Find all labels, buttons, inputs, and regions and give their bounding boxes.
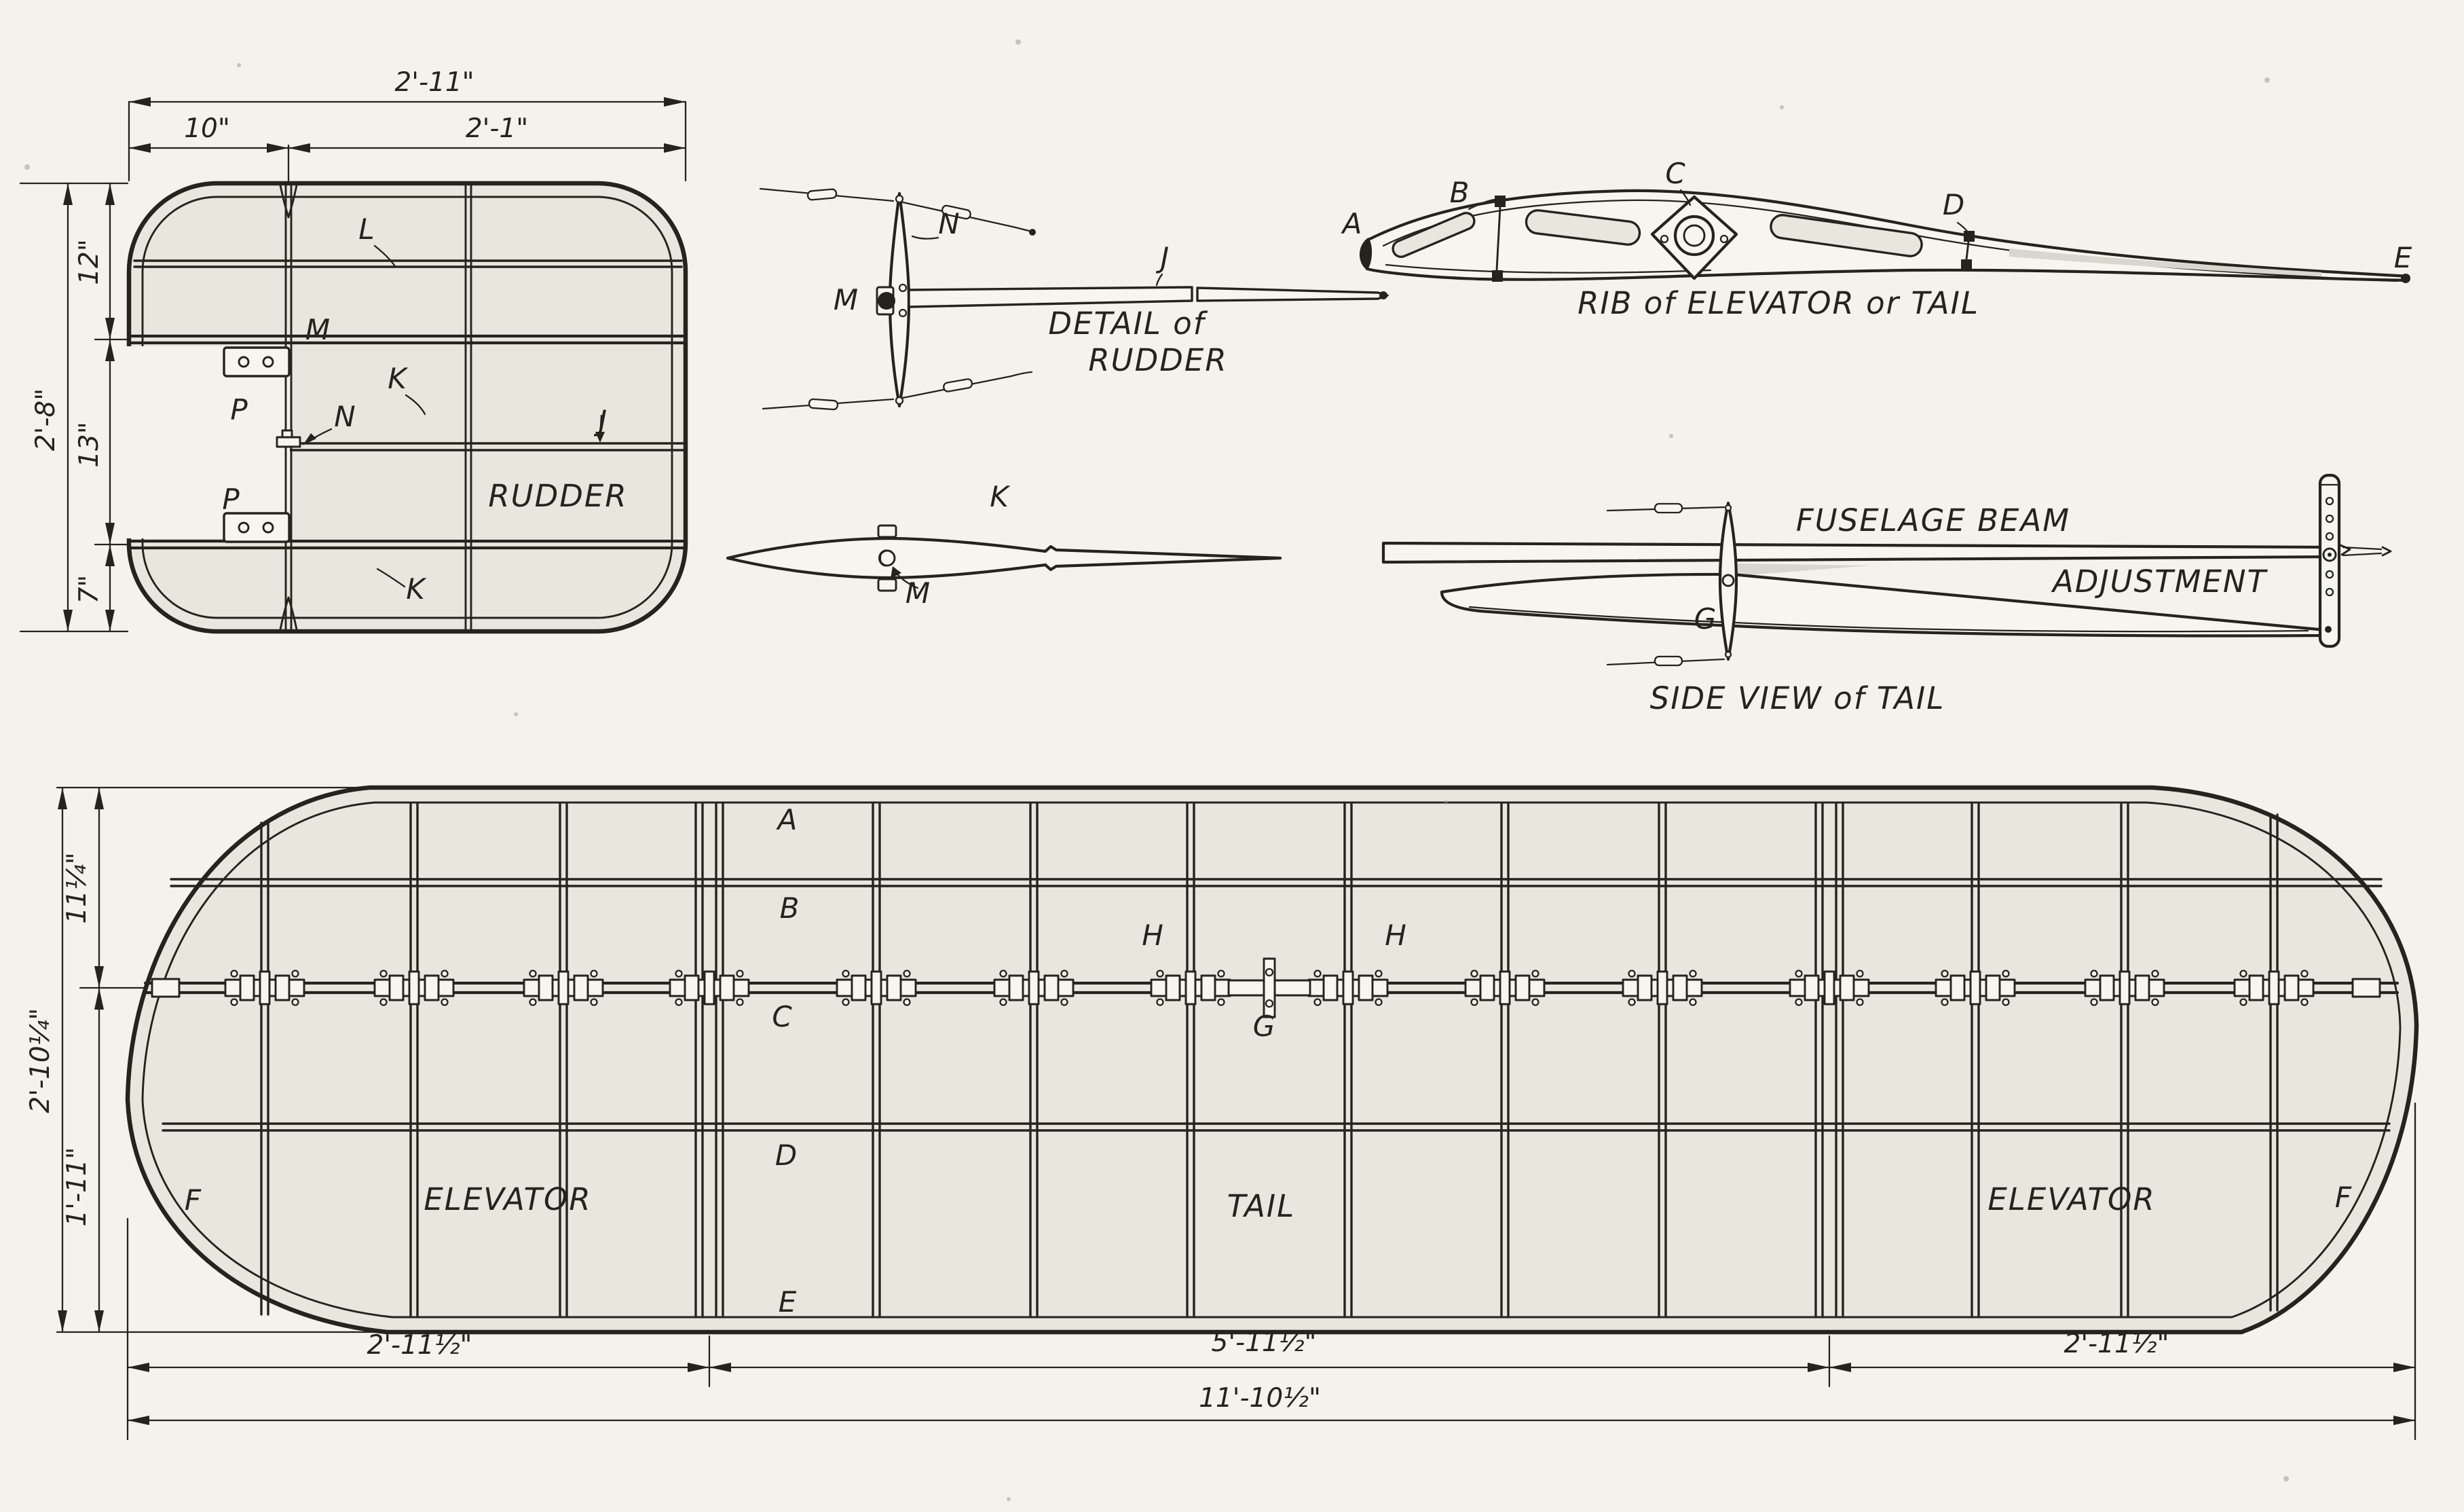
rib-label-c: C xyxy=(1665,157,1685,190)
dim-rudder-7: 7" xyxy=(74,575,105,604)
adjustment-label: ADJUSTMENT xyxy=(2051,564,2269,600)
part-label-l: L xyxy=(358,213,374,246)
rib-tail-block xyxy=(2401,274,2410,283)
side-label-g: G xyxy=(1694,602,1717,635)
dim-plan-height-bottom: 1'-11" xyxy=(62,1147,92,1226)
drawing-sheet: L M K P P N J K RUDDER 2'-11" 10" 2'-1" xyxy=(0,0,2464,1512)
dim-rudder-10: 10" xyxy=(184,113,230,144)
adjustment-plate xyxy=(2320,475,2339,646)
plan-elevator-left-label: ELEVATOR xyxy=(424,1181,591,1217)
rudder-pivot-clamp xyxy=(877,287,895,314)
rib-label-d: D xyxy=(1943,188,1964,221)
part-label-m: M xyxy=(305,313,330,346)
plan-label-b: B xyxy=(780,891,800,925)
dim-rudder-height: 2'-8" xyxy=(31,388,61,451)
part-label-p-upper: P xyxy=(230,393,248,426)
detail-label-n: N xyxy=(938,207,959,240)
part-label-k-lower: K xyxy=(406,572,427,606)
dim-rudder-width: 2'-11" xyxy=(394,67,474,98)
plan-elevator-right-label: ELEVATOR xyxy=(1987,1181,2155,1217)
detail-title-line1: DETAIL of xyxy=(1048,306,1208,342)
rib-title: RIB of ELEVATOR or TAIL xyxy=(1578,285,1979,321)
detail-title-line2: RUDDER xyxy=(1088,342,1227,378)
fuselage-beam-label: FUSELAGE BEAM xyxy=(1796,502,2070,538)
rib-label-e: E xyxy=(2394,241,2412,274)
plan-label-a: A xyxy=(776,803,798,836)
spar-strap-bottom xyxy=(878,579,896,591)
plan-label-h-right: H xyxy=(1385,919,1406,952)
rudder-title: RUDDER xyxy=(488,478,627,514)
dim-rudder-2-1: 2'-1" xyxy=(466,113,528,144)
plan-label-f-left: F xyxy=(185,1183,202,1217)
plan-outline xyxy=(128,788,2416,1332)
spar-label-m: M xyxy=(906,576,930,610)
part-label-n: N xyxy=(334,400,355,433)
rudder-hinge-upper xyxy=(224,348,289,376)
dim-plan-height-overall: 2'-10¼" xyxy=(25,1008,56,1113)
dim-rudder-13: 13" xyxy=(74,422,105,468)
spar-strap-top xyxy=(878,525,896,537)
dim-plan-height-top: 11¼" xyxy=(62,852,92,923)
plan-label-g: G xyxy=(1253,1010,1275,1043)
part-label-k-upper: K xyxy=(388,362,409,395)
rib-label-a: A xyxy=(1341,207,1362,240)
plan-label-e: E xyxy=(779,1285,797,1319)
rudder-hinge-lower xyxy=(224,513,289,542)
dim-plan-bottom-overall: 11'-10½" xyxy=(1199,1383,1321,1414)
dim-plan-bottom-left: 2'-11½" xyxy=(367,1330,472,1361)
spar-label-k: K xyxy=(990,480,1011,513)
dim-rudder-12: 12" xyxy=(74,239,105,285)
blueprint-canvas: L M K P P N J K RUDDER 2'-11" 10" 2'-1" xyxy=(0,0,2464,1512)
plan-label-h-left: H xyxy=(1142,919,1163,952)
plan-tail-label: TAIL xyxy=(1227,1188,1295,1224)
plan-label-c: C xyxy=(772,1000,792,1033)
dim-plan-bottom-right: 2'-11½" xyxy=(2064,1329,2169,1359)
detail-label-m: M xyxy=(834,283,858,316)
plan-label-d: D xyxy=(775,1139,797,1172)
part-label-p-lower: P xyxy=(222,483,240,516)
plan-label-f-right: F xyxy=(2335,1181,2352,1214)
dim-plan-bottom-mid: 5'-11½" xyxy=(1212,1327,1317,1358)
rib-label-b: B xyxy=(1450,176,1470,209)
side-view-title: SIDE VIEW of TAIL xyxy=(1650,680,1945,716)
